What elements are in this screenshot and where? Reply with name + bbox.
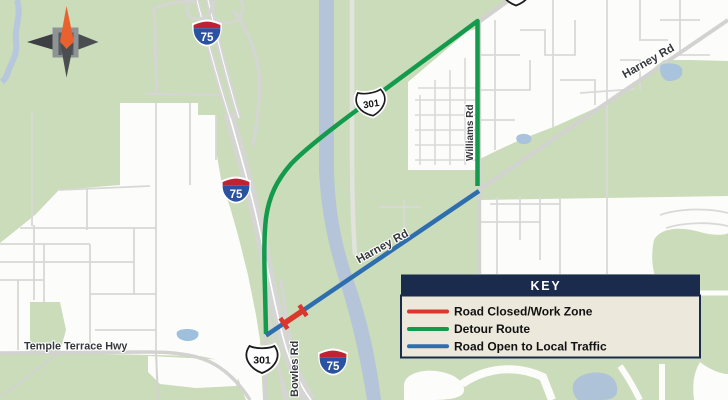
svg-text:Temple Terrace Hwy: Temple Terrace Hwy — [24, 341, 127, 353]
svg-text:KEY: KEY — [530, 279, 561, 293]
svg-text:Williams Rd: Williams Rd — [465, 104, 476, 161]
svg-text:75: 75 — [327, 361, 340, 373]
svg-text:Detour Route: Detour Route — [454, 322, 530, 336]
svg-text:Bowles Rd: Bowles Rd — [289, 341, 301, 397]
svg-text:301: 301 — [253, 355, 271, 367]
svg-text:Road Closed/Work Zone: Road Closed/Work Zone — [454, 305, 593, 319]
svg-text:75: 75 — [230, 189, 243, 201]
svg-text:75: 75 — [201, 32, 214, 44]
svg-text:Road Open to Local Traffic: Road Open to Local Traffic — [454, 339, 607, 353]
